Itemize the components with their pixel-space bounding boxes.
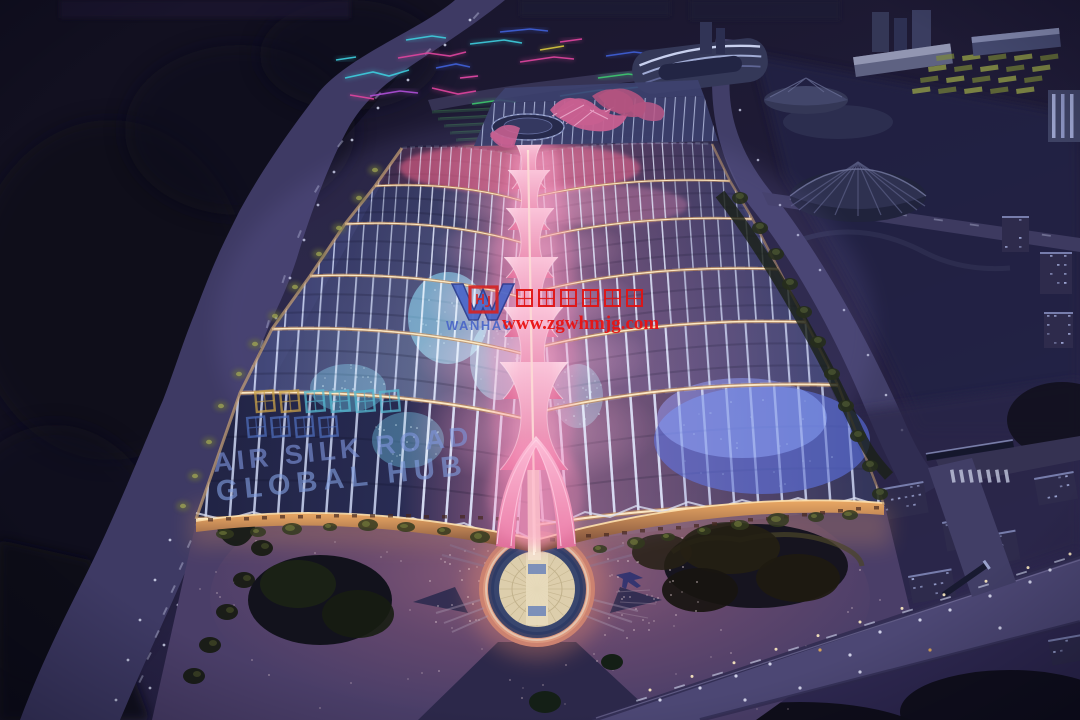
svg-text:www.zgwhmjg.com: www.zgwhmjg.com — [502, 313, 659, 334]
